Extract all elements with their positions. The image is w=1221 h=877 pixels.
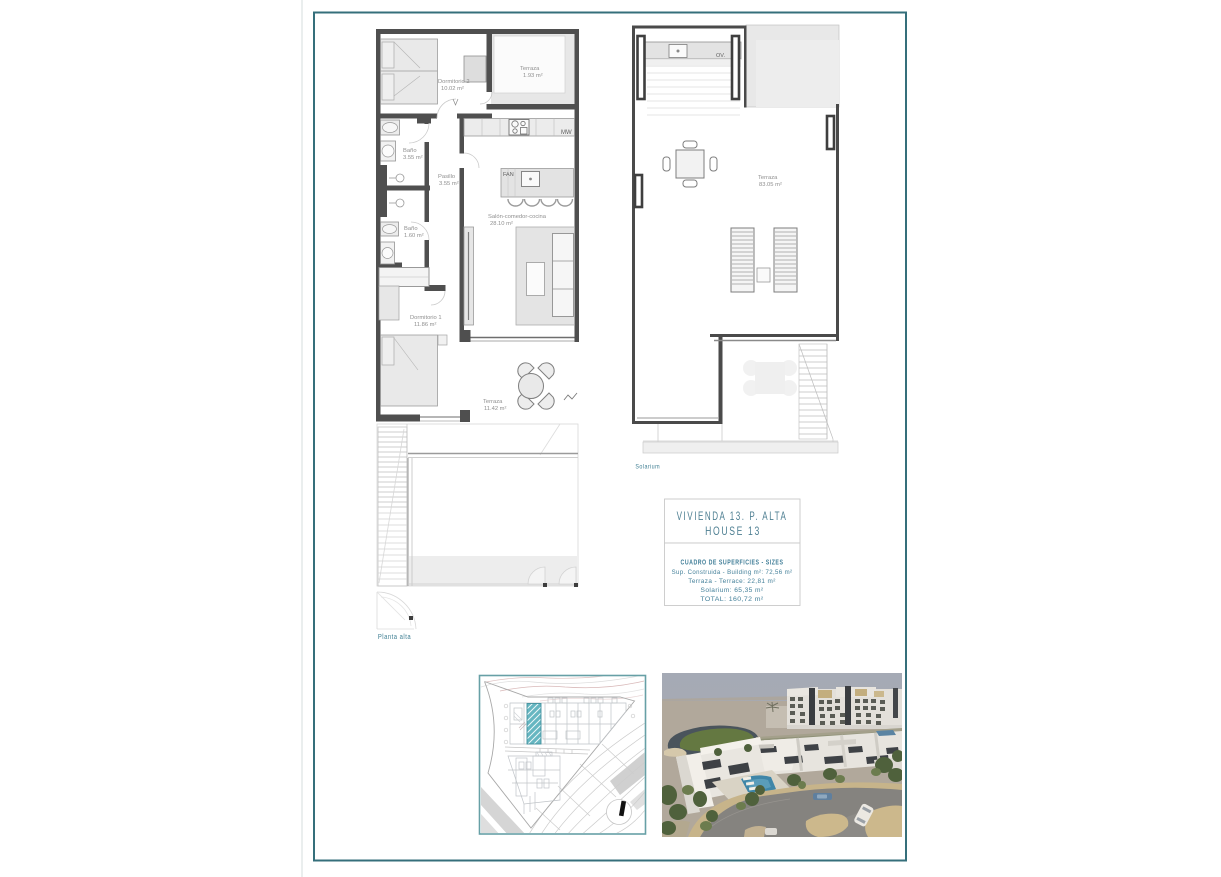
- svg-text:Salón-comedor-cocina: Salón-comedor-cocina: [488, 214, 547, 220]
- svg-text:1.60 m²: 1.60 m²: [404, 233, 424, 239]
- svg-text:HOUSE 13: HOUSE 13: [705, 526, 761, 538]
- svg-text:Dormitorio 1: Dormitorio 1: [410, 315, 442, 321]
- svg-text:Terraza: Terraza: [483, 399, 503, 405]
- svg-text:1.93 m²: 1.93 m²: [523, 73, 543, 79]
- svg-text:Baño: Baño: [404, 226, 418, 232]
- svg-text:28.10 m²: 28.10 m²: [490, 221, 513, 227]
- svg-text:Solarium: 65,35 m²: Solarium: 65,35 m²: [701, 587, 764, 594]
- svg-text:Sup. Construida - Building m²: Sup. Construida - Building m²: 72,56 m²: [672, 569, 793, 576]
- svg-text:3.55 m²: 3.55 m²: [439, 181, 459, 187]
- svg-text:FAN: FAN: [503, 172, 514, 178]
- svg-text:Pasillo: Pasillo: [438, 174, 455, 180]
- svg-text:CUADRO DE SUPERFICIES - SIZES: CUADRO DE SUPERFICIES - SIZES: [681, 559, 784, 567]
- svg-text:11.42 m²: 11.42 m²: [484, 406, 507, 412]
- svg-text:Solarium: Solarium: [635, 464, 660, 471]
- svg-text:3.55 m²: 3.55 m²: [403, 155, 423, 161]
- svg-text:VIVIENDA 13. P. ALTA: VIVIENDA 13. P. ALTA: [677, 511, 788, 524]
- svg-text:83.05 m²: 83.05 m²: [759, 182, 782, 188]
- svg-text:11.86 m²: 11.86 m²: [414, 322, 437, 328]
- svg-text:Terraza: Terraza: [520, 66, 540, 72]
- svg-text:Baño: Baño: [403, 148, 417, 154]
- svg-text:Terraza - Terrace: 22,81 m²: Terraza - Terrace: 22,81 m²: [688, 578, 776, 585]
- svg-text:Planta alta: Planta alta: [378, 634, 411, 642]
- svg-text:MW: MW: [561, 130, 572, 136]
- svg-text:Terraza: Terraza: [758, 175, 778, 181]
- svg-text:10.02 m²: 10.02 m²: [441, 86, 464, 92]
- svg-text:Dormitorio 2: Dormitorio 2: [438, 79, 470, 85]
- svg-text:OV.: OV.: [716, 53, 725, 59]
- svg-text:TOTAL: 160,72 m²: TOTAL: 160,72 m²: [700, 596, 764, 603]
